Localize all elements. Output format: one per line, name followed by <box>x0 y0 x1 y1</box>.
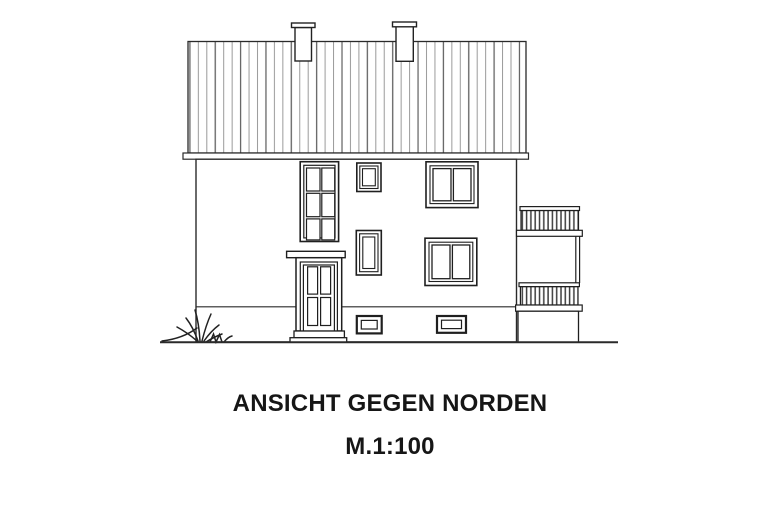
mid-small-window <box>356 231 381 276</box>
basement-window-left <box>357 316 382 333</box>
drawing-title: ANSICHT GEGEN NORDEN <box>0 392 780 416</box>
elevation-drawing-page: ANSICHT GEGEN NORDEN M.1:100 <box>0 0 780 520</box>
chimney-right <box>393 22 417 61</box>
entrance-steps <box>290 331 347 342</box>
eave-fascia <box>183 153 529 159</box>
basement-window-right <box>437 316 466 333</box>
stair-window <box>300 162 338 242</box>
roof <box>183 42 529 160</box>
drawing-scale: M.1:100 <box>0 435 780 459</box>
balcony-base <box>518 311 579 342</box>
entrance-door <box>296 258 342 331</box>
upper-small-window <box>357 163 381 192</box>
entrance-canopy <box>287 251 346 257</box>
balcony-lower-railing <box>516 283 583 311</box>
lower-right-window <box>425 238 477 285</box>
upper-right-window <box>426 162 478 208</box>
balcony-upper-railing <box>517 207 583 283</box>
chimney-left <box>292 23 316 61</box>
